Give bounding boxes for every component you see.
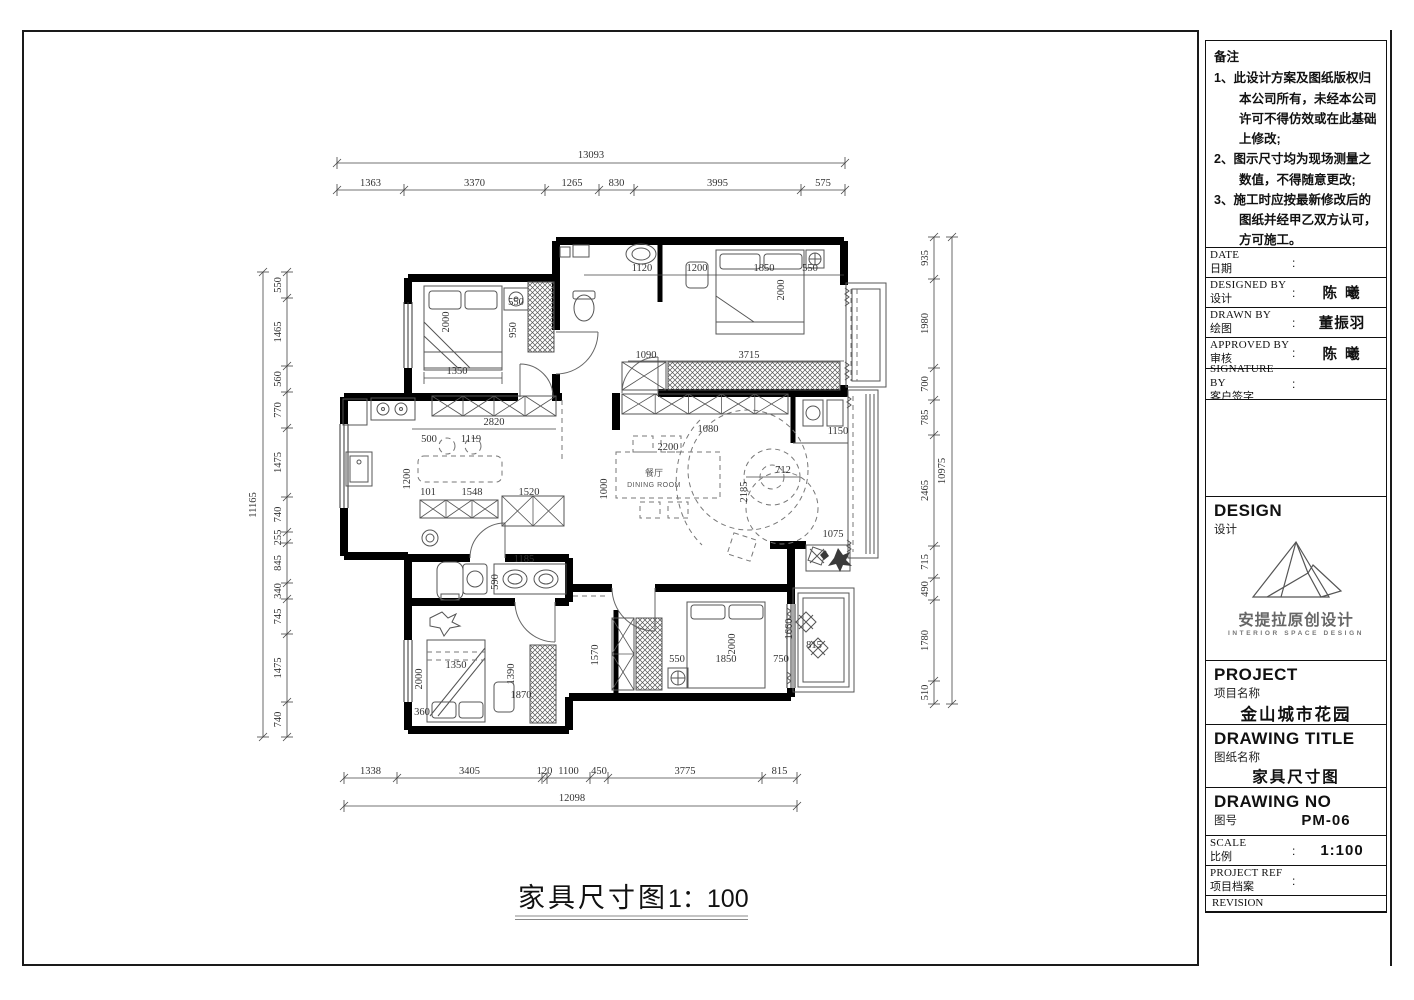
dim-label: 120 bbox=[537, 766, 553, 777]
date-label-zh: 日期 bbox=[1210, 263, 1292, 277]
dim-label: 340 bbox=[273, 583, 284, 599]
dim-label: 550 bbox=[802, 263, 818, 274]
dim-label: 1870 bbox=[511, 690, 532, 701]
project-header-en: PROJECT bbox=[1214, 665, 1378, 685]
designed-value: 陈 曦 bbox=[1302, 282, 1382, 303]
dim-label: 2465 bbox=[920, 480, 931, 501]
dim-label: 10975 bbox=[937, 458, 948, 484]
date-label-en: DATE bbox=[1210, 249, 1292, 263]
dim-label: 1080 bbox=[698, 424, 719, 435]
drawing-title-value: 家具尺寸图 bbox=[1214, 765, 1378, 787]
dim-label: 1265 bbox=[562, 178, 583, 189]
project-section: PROJECT 项目名称 金山城市花园 bbox=[1206, 661, 1386, 725]
dim-label: 2200 bbox=[658, 442, 679, 453]
plan-title-text: 家具尺寸图 bbox=[518, 883, 668, 913]
note-item: 3、施工时应按最新修改后的图纸并经甲乙双方认可，方可施工。 bbox=[1214, 190, 1378, 251]
dim-label: 13093 bbox=[578, 150, 604, 161]
dining-room-label-zh: 餐厅 bbox=[645, 467, 663, 478]
drawing-no-section: DRAWING NO 图号 PM-06 bbox=[1206, 788, 1386, 836]
dim-label: 1338 bbox=[360, 766, 381, 777]
revision-row: REVISION bbox=[1206, 896, 1386, 912]
notes-title: 备注 bbox=[1214, 47, 1378, 67]
dim-label: 1780 bbox=[920, 630, 931, 651]
design-header-zh: 设计 bbox=[1214, 521, 1378, 537]
dim-label: 1075 bbox=[823, 529, 844, 540]
scale-label-zh: 比例 bbox=[1210, 851, 1292, 865]
dim-label: 1475 bbox=[273, 452, 284, 473]
dim-label: 1000 bbox=[599, 479, 610, 500]
dim-label: 2000 bbox=[414, 669, 425, 690]
wardrobe bbox=[636, 618, 662, 690]
dim-label: 1520 bbox=[519, 487, 540, 498]
signature-row: SIGNATURE BY 客户签字 : bbox=[1206, 369, 1386, 400]
dim-label: 11165 bbox=[248, 492, 259, 517]
design-header-en: DESIGN bbox=[1214, 501, 1378, 521]
colon: : bbox=[1292, 286, 1302, 300]
dim-label: 12098 bbox=[559, 793, 585, 804]
colon: : bbox=[1292, 346, 1302, 360]
dim-label: 740 bbox=[273, 712, 284, 728]
dim-label: 101 bbox=[420, 487, 436, 498]
dim-label: 1660 bbox=[784, 619, 795, 640]
dim-label: 510 bbox=[920, 685, 931, 701]
dim-label: 1548 bbox=[462, 487, 483, 498]
drawing-no-value: PM-06 bbox=[1274, 812, 1378, 829]
dim-label: 1150 bbox=[828, 426, 849, 437]
drawing-no-header-en: DRAWING NO bbox=[1214, 792, 1378, 812]
dim-label: 712 bbox=[775, 465, 791, 476]
plan-title-scale: 1：100 bbox=[668, 885, 749, 913]
dim-label: 3995 bbox=[707, 178, 728, 189]
project-ref-row: PROJECT REF 项目档案 : bbox=[1206, 866, 1386, 896]
note-item: 1、此设计方案及图纸版权归本公司所有，未经本公司许可不得仿效或在此基础上修改; bbox=[1214, 68, 1378, 149]
project-name: 金山城市花园 bbox=[1214, 701, 1378, 725]
scale-row: SCALE 比例 : 1:100 bbox=[1206, 836, 1386, 866]
design-section: DESIGN 设计 安提拉原创设计 INTERIOR SPACE DESIGN bbox=[1206, 497, 1386, 661]
dim-label: 785 bbox=[920, 410, 931, 426]
colon: : bbox=[1292, 256, 1302, 270]
dim-label: 1200 bbox=[687, 263, 708, 274]
dim-label: 770 bbox=[273, 402, 284, 418]
dim-label: 830 bbox=[609, 178, 625, 189]
dim-label: 3715 bbox=[739, 350, 760, 361]
drawing-no-header-zh: 图号 bbox=[1214, 812, 1274, 829]
dim-label: 550 bbox=[508, 297, 524, 308]
dim-label: 750 bbox=[773, 654, 789, 665]
project-header-zh: 项目名称 bbox=[1214, 685, 1378, 701]
title-block-panel: 备注 1、此设计方案及图纸版权归本公司所有，未经本公司许可不得仿效或在此基础上修… bbox=[1197, 30, 1390, 966]
scale-value: 1:100 bbox=[1302, 842, 1382, 859]
dim-label: 2000 bbox=[776, 280, 787, 301]
colon: : bbox=[1292, 377, 1302, 391]
dim-label: 500 bbox=[421, 434, 437, 445]
dim-label: 815 bbox=[806, 640, 822, 651]
signature-label-en: SIGNATURE BY bbox=[1210, 363, 1292, 391]
drawing-title-header-en: DRAWING TITLE bbox=[1214, 729, 1378, 749]
empty-section bbox=[1206, 400, 1386, 497]
dim-label: 1090 bbox=[636, 350, 657, 361]
drawn-label-zh: 绘图 bbox=[1210, 323, 1292, 337]
colon: : bbox=[1292, 874, 1302, 888]
colon: : bbox=[1292, 844, 1302, 858]
room-labels: 餐厅 DINING ROOM bbox=[627, 467, 681, 489]
designed-label-zh: 设计 bbox=[1210, 293, 1292, 307]
notes-section: 备注 1、此设计方案及图纸版权归本公司所有，未经本公司许可不得仿效或在此基础上修… bbox=[1206, 41, 1386, 248]
dim-label: 3775 bbox=[675, 766, 696, 777]
drawing-sheet: 1363337012658303995575130931338340512011… bbox=[0, 0, 1414, 1000]
project-ref-label-en: PROJECT REF bbox=[1210, 867, 1292, 881]
approved-value: 陈 曦 bbox=[1302, 343, 1382, 364]
designed-label-en: DESIGNED BY bbox=[1210, 279, 1292, 293]
dim-label: 3370 bbox=[464, 178, 485, 189]
title-block-column: 备注 1、此设计方案及图纸版权归本公司所有，未经本公司许可不得仿效或在此基础上修… bbox=[1205, 40, 1387, 913]
dim-label: 1200 bbox=[402, 469, 413, 490]
dim-label: 2000 bbox=[441, 312, 452, 333]
dimension-chains: 1363337012658303995575130931338340512011… bbox=[248, 150, 958, 812]
dim-label: 815 bbox=[772, 766, 788, 777]
dim-label: 1570 bbox=[590, 645, 601, 666]
company-logo-text: 安提拉原创设计 bbox=[1214, 608, 1378, 630]
drawn-label-en: DRAWN BY bbox=[1210, 309, 1292, 323]
dim-label: 2000 bbox=[727, 634, 738, 655]
date-row: DATE 日期 : bbox=[1206, 248, 1386, 278]
dim-label: 950 bbox=[508, 322, 519, 338]
dim-label: 935 bbox=[920, 250, 931, 266]
drawing-title-header-zh: 图纸名称 bbox=[1214, 749, 1378, 765]
dining-room-label-en: DINING ROOM bbox=[627, 482, 681, 489]
scale-label-en: SCALE bbox=[1210, 837, 1292, 851]
dim-label: 1185 bbox=[514, 554, 535, 565]
dim-label: 1850 bbox=[716, 654, 737, 665]
plan-title: 家具尺寸图 1：100 bbox=[515, 883, 749, 920]
dim-label: 550 bbox=[273, 277, 284, 293]
dim-label: 700 bbox=[920, 376, 931, 392]
note-item: 2、图示尺寸均为现场测量之数值，不得随意更改; bbox=[1214, 149, 1378, 190]
company-logo-icon bbox=[1241, 539, 1351, 605]
wardrobe bbox=[668, 362, 840, 390]
dim-label: 450 bbox=[591, 766, 607, 777]
dim-label: 845 bbox=[273, 555, 284, 571]
wardrobe bbox=[530, 645, 556, 723]
dim-label: 1465 bbox=[273, 322, 284, 343]
wardrobe bbox=[528, 282, 554, 352]
dim-label: 590 bbox=[490, 574, 501, 590]
revision-label: REVISION bbox=[1212, 897, 1263, 909]
dim-label: 1363 bbox=[360, 178, 381, 189]
drawn-value: 董振羽 bbox=[1302, 312, 1382, 333]
project-ref-label-zh: 项目档案 bbox=[1210, 881, 1292, 895]
dim-label: 1120 bbox=[632, 263, 653, 274]
dim-label: 1119 bbox=[461, 434, 481, 445]
dim-label: 575 bbox=[815, 178, 831, 189]
dim-label: 1100 bbox=[558, 766, 579, 777]
drawing-title-section: DRAWING TITLE 图纸名称 家具尺寸图 bbox=[1206, 725, 1386, 788]
dim-label: 2185 bbox=[739, 482, 750, 503]
dim-label: 715 bbox=[920, 554, 931, 570]
dim-label: 550 bbox=[669, 654, 685, 665]
dim-label: 255 bbox=[273, 530, 284, 546]
dim-label: 745 bbox=[273, 609, 284, 625]
dim-label: 560 bbox=[273, 371, 284, 387]
approved-label-en: APPROVED BY bbox=[1210, 339, 1292, 353]
dim-label: 1980 bbox=[920, 313, 931, 334]
drawn-by-row: DRAWN BY 绘图 : 董振羽 bbox=[1206, 308, 1386, 338]
dim-label: 1390 bbox=[506, 664, 517, 685]
colon: : bbox=[1292, 316, 1302, 330]
company-logo-subtext: INTERIOR SPACE DESIGN bbox=[1214, 630, 1378, 637]
dim-label: 360 bbox=[414, 707, 430, 718]
balconies bbox=[787, 283, 886, 692]
dim-label: 490 bbox=[920, 581, 931, 597]
dim-label: 1850 bbox=[754, 263, 775, 274]
designed-by-row: DESIGNED BY 设计 : 陈 曦 bbox=[1206, 278, 1386, 308]
dim-label: 1475 bbox=[273, 658, 284, 679]
dim-label: 1350 bbox=[446, 660, 467, 671]
dim-label: 3405 bbox=[459, 766, 480, 777]
dim-label: 1350 bbox=[447, 366, 468, 377]
dim-label: 740 bbox=[273, 507, 284, 523]
dim-label: 2820 bbox=[484, 417, 505, 428]
